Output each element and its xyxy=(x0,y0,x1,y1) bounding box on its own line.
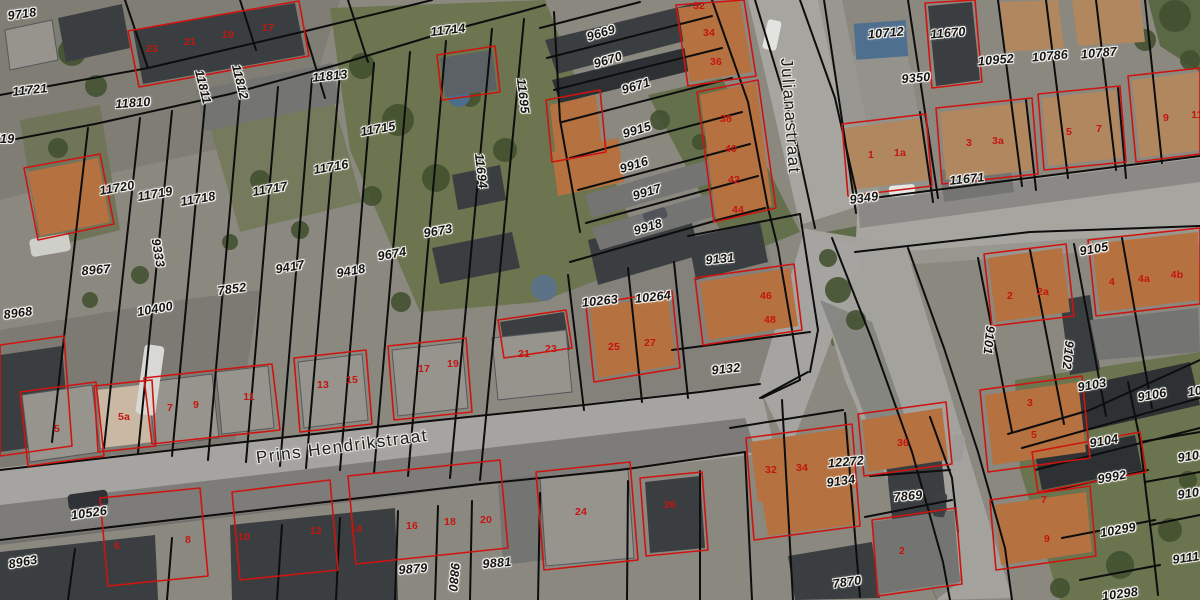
map-canvas[interactable]: 9718971911721118101181111812118131171411… xyxy=(0,0,1200,600)
aerial-basemap xyxy=(0,0,1200,600)
